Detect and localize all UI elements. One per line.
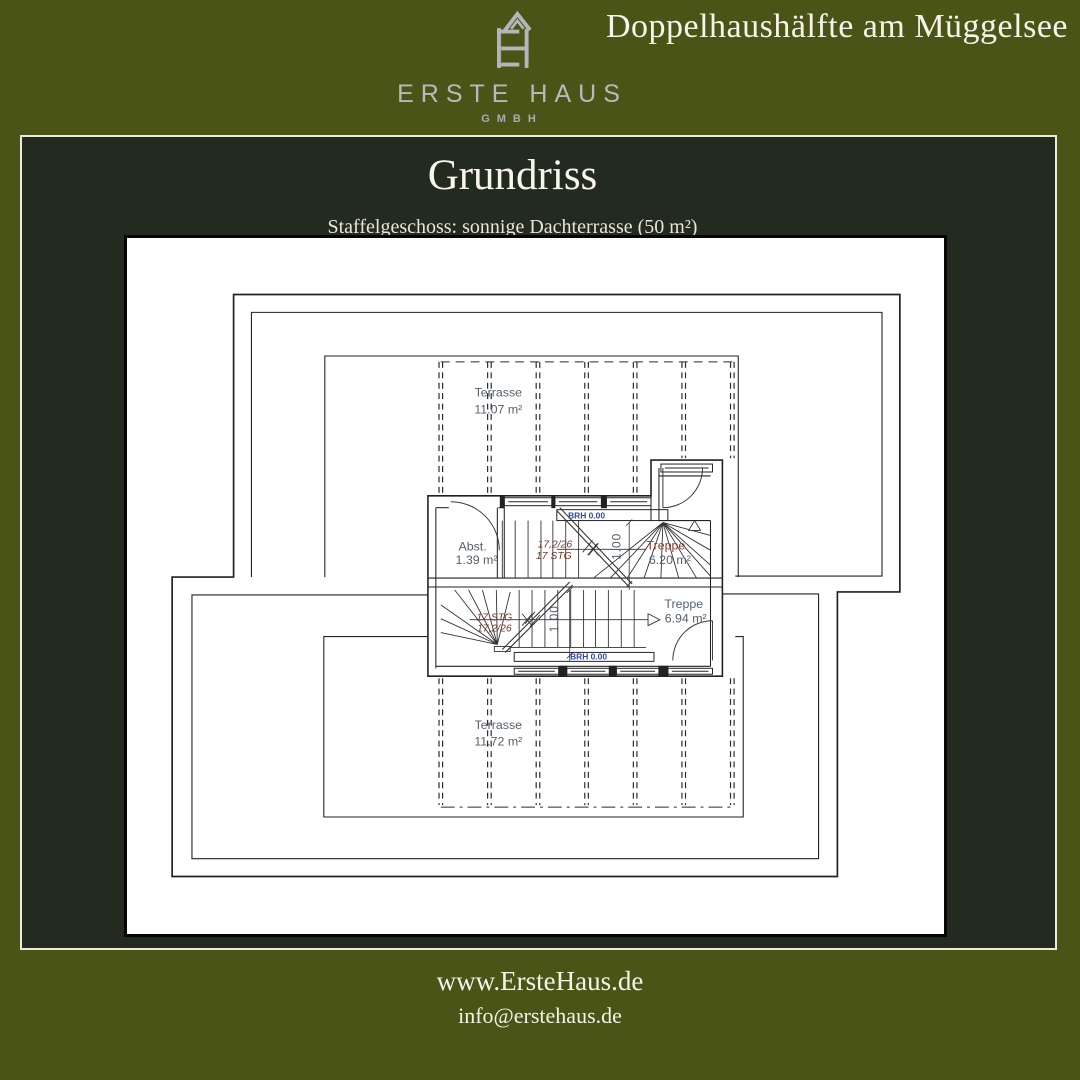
brand-subtitle: GMBH	[0, 113, 1052, 125]
stair-core-outline	[428, 460, 722, 676]
terrace-bottom-label: Terrasse	[475, 718, 523, 732]
floorplan-drawing: Terrasse 11.07 m² Abst. 1.39 m² 17,2/26 …	[124, 235, 947, 937]
house-eh-monogram-icon	[489, 6, 535, 74]
footer-website: www.ErsteHaus.de	[0, 966, 1080, 997]
stair-bottom-note-1: 17 STG	[476, 613, 512, 624]
sill-bottom-label: BRH 0.00	[570, 651, 607, 661]
stair-top-note-1: 17,2/26	[537, 539, 572, 550]
abst-label: Abst.	[458, 539, 486, 553]
treppe-bottom-label: Treppe	[664, 597, 703, 611]
dim-top-label: 1.00	[609, 533, 623, 560]
dim-bottom-label: 1.00	[547, 605, 561, 632]
brand-name: ERSTE HAUS	[0, 80, 1052, 109]
stair-top-note-2: 17 STG	[536, 551, 572, 562]
terrace-top-label: Terrasse	[475, 386, 523, 400]
terrace-bottom-area: 11.72 m²	[474, 735, 522, 749]
panel-title: Grundriss	[22, 151, 1055, 200]
listing-headline: Doppelhaushälfte am Müggelsee	[606, 8, 1068, 46]
page: { "brand": { "name": "ERSTE HAUS", "sub"…	[0, 0, 1080, 1080]
terrace-top-area: 11.07 m²	[474, 402, 522, 416]
treppe-top-area: 6.20 m²	[649, 553, 691, 567]
treppe-bottom-area: 6.94 m²	[665, 612, 707, 626]
floorplan-panel: Grundriss Staffelgeschoss: sonnige Dacht…	[20, 135, 1057, 950]
treppe-top-label: Treppe	[647, 538, 686, 552]
bottom-window-band	[514, 666, 712, 676]
abst-area: 1.39 m²	[456, 553, 498, 567]
footer: www.ErsteHaus.de info@erstehaus.de	[0, 966, 1080, 1029]
top-window-band	[500, 496, 651, 508]
sill-top-label: BRH 0.00	[568, 511, 605, 521]
footer-email: info@erstehaus.de	[0, 1003, 1080, 1029]
stair-bottom-note-2: 17,2/26	[477, 624, 512, 635]
floorplan-svg: Terrasse 11.07 m² Abst. 1.39 m² 17,2/26 …	[127, 238, 944, 934]
